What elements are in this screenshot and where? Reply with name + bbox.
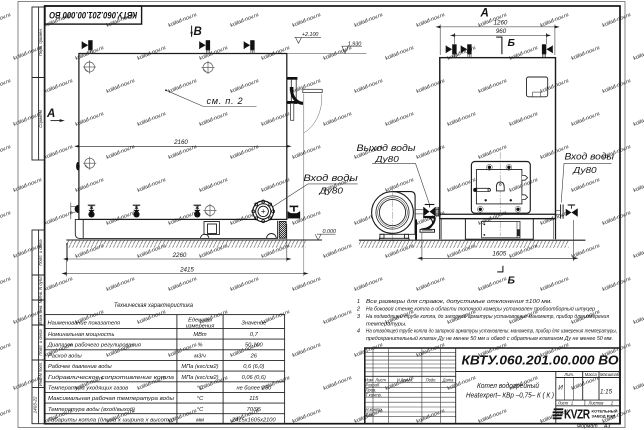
svg-text:Листов: Листов xyxy=(588,401,605,406)
svg-text:kotlad-nov.ru: kotlad-nov.ru xyxy=(385,111,415,128)
svg-text:kotlad-nov.ru: kotlad-nov.ru xyxy=(292,12,322,29)
svg-text:Дата: Дата xyxy=(442,377,455,382)
svg-text:kotlad-nov.ru: kotlad-nov.ru xyxy=(416,12,446,29)
svg-text:Изм: Изм xyxy=(365,377,373,382)
svg-text:kotlad-nov.ru: kotlad-nov.ru xyxy=(540,276,570,293)
svg-text:Диапазон рабочего регулировани: Диапазон рабочего регулирования xyxy=(47,343,141,349)
svg-text:kotlad-nov.ru: kotlad-nov.ru xyxy=(633,243,644,260)
svg-text:kotlad-nov.ru: kotlad-nov.ru xyxy=(168,78,198,95)
svg-text:Взам. инв. N: Взам. инв. N xyxy=(38,299,43,324)
svg-text:Справ. N: Справ. N xyxy=(38,109,43,127)
svg-text:kotlad-nov.ru: kotlad-nov.ru xyxy=(230,78,260,95)
svg-text:Б: Б xyxy=(508,275,516,287)
svg-text:Вход воды: Вход воды xyxy=(565,152,615,162)
svg-text:kotlad-nov.ru: kotlad-nov.ru xyxy=(323,111,353,128)
svg-text:kotlad-nov.ru: kotlad-nov.ru xyxy=(137,309,167,326)
svg-text:kotlad-nov.ru: kotlad-nov.ru xyxy=(602,210,632,227)
svg-text:kotlad-nov.ru: kotlad-nov.ru xyxy=(602,78,632,95)
svg-text:kotlad-nov.ru: kotlad-nov.ru xyxy=(292,144,322,161)
svg-text:kotlad-nov.ru: kotlad-nov.ru xyxy=(478,408,508,425)
svg-text:kotlad-nov.ru: kotlad-nov.ru xyxy=(230,276,260,293)
svg-text:kotlad-nov.ru: kotlad-nov.ru xyxy=(292,342,322,359)
svg-text:kotlad-nov.ru: kotlad-nov.ru xyxy=(602,276,632,293)
svg-text:kotlad-nov.ru: kotlad-nov.ru xyxy=(571,243,601,260)
svg-text:Т.контр.: Т.контр. xyxy=(366,393,383,398)
svg-text:kotlad-nov.ru: kotlad-nov.ru xyxy=(447,177,477,194)
svg-text:kotlad-nov.ru: kotlad-nov.ru xyxy=(292,210,322,227)
svg-text:kotlad-nov.ru: kotlad-nov.ru xyxy=(354,78,384,95)
svg-text:0,7: 0,7 xyxy=(250,332,259,338)
svg-text:°С: °С xyxy=(197,385,204,391)
svg-text:kotlad-nov.ru: kotlad-nov.ru xyxy=(0,78,12,95)
svg-text:kotlad-nov.ru: kotlad-nov.ru xyxy=(0,342,12,359)
svg-text:2160: 2160 xyxy=(173,139,188,146)
svg-text:kotlad-nov.ru: kotlad-nov.ru xyxy=(571,111,601,128)
svg-text:1605: 1605 xyxy=(492,251,506,258)
svg-text:kotlad-nov.ru: kotlad-nov.ru xyxy=(44,144,74,161)
svg-text:kotlad-nov.ru: kotlad-nov.ru xyxy=(633,375,644,392)
svg-text:KVZR: KVZR xyxy=(564,407,590,422)
svg-text:70/95: 70/95 xyxy=(247,407,262,413)
svg-text:kotlad-nov.ru: kotlad-nov.ru xyxy=(447,111,477,128)
svg-text:На боковой стенке котла в обла: На боковой стенке котла в области топочн… xyxy=(366,306,595,313)
svg-text:Вход воды: Вход воды xyxy=(303,173,358,183)
svg-text:kotlad-nov.ru: kotlad-nov.ru xyxy=(44,276,74,293)
svg-text:Рабочее давление воды: Рабочее давление воды xyxy=(48,364,113,370)
svg-text:Heatexpert– КВр –0,75– К ( К ): Heatexpert– КВр –0,75– К ( К ) xyxy=(466,390,554,399)
svg-text:Лит.: Лит. xyxy=(563,372,574,377)
svg-text:Подп. и дата: Подп. и дата xyxy=(38,239,43,266)
svg-text:Инв. N дубл.: Инв. N дубл. xyxy=(38,275,43,299)
svg-text:Перв. примен.: Перв. примен. xyxy=(38,28,43,56)
svg-text:°С: °С xyxy=(197,396,204,402)
svg-text:kotlad-nov.ru: kotlad-nov.ru xyxy=(199,177,229,194)
svg-text:На отводящей трубе котла до за: На отводящей трубе котла до запорной арм… xyxy=(366,328,617,335)
svg-text:kotlad-nov.ru: kotlad-nov.ru xyxy=(199,111,229,128)
svg-text:kotlad-nov.ru: kotlad-nov.ru xyxy=(137,177,167,194)
svg-text:kotlad-nov.ru: kotlad-nov.ru xyxy=(385,45,415,62)
svg-text:kotlad-nov.ru: kotlad-nov.ru xyxy=(13,177,43,194)
svg-text:kotlad-nov.ru: kotlad-nov.ru xyxy=(354,276,384,293)
svg-text:kotlad-nov.ru: kotlad-nov.ru xyxy=(0,276,12,293)
svg-text:А3: А3 xyxy=(603,424,610,430)
svg-text:1: 1 xyxy=(571,401,573,406)
svg-text:Ду80: Ду80 xyxy=(572,165,597,175)
svg-text:МПа (кгс/см2): МПа (кгс/см2) xyxy=(181,375,218,381)
svg-text:Температура воды (вход/выход): Температура воды (вход/выход) xyxy=(48,407,135,413)
svg-text:Выход воды: Выход воды xyxy=(357,143,416,153)
svg-text:kotlad-nov.ru: kotlad-nov.ru xyxy=(292,276,322,293)
svg-text:kotlad-nov.ru: kotlad-nov.ru xyxy=(354,12,384,29)
svg-text:kotlad-nov.ru: kotlad-nov.ru xyxy=(323,375,353,392)
svg-text:Температура уходящих газов: Температура уходящих газов xyxy=(48,385,128,391)
svg-text:2415х1605х2100: 2415х1605х2100 xyxy=(231,417,276,423)
svg-text:Инв. N подл.: Инв. N подл. xyxy=(38,362,43,386)
svg-text:kotlad-nov.ru: kotlad-nov.ru xyxy=(0,408,12,425)
svg-text:2: 2 xyxy=(610,401,614,406)
svg-text:kotlad-nov.ru: kotlad-nov.ru xyxy=(478,78,508,95)
svg-text:2: 2 xyxy=(356,307,361,313)
svg-text:kotlad-nov.ru: kotlad-nov.ru xyxy=(633,45,644,62)
svg-text:°С: °С xyxy=(197,407,204,413)
svg-text:Техническая характеристика: Техническая характеристика xyxy=(114,303,194,309)
svg-text:Номинальная мощность: Номинальная мощность xyxy=(48,332,114,338)
svg-text:Масса: Масса xyxy=(585,372,598,377)
svg-text:1260: 1260 xyxy=(494,19,508,26)
svg-text:115: 115 xyxy=(249,396,259,402)
svg-text:kotlad-nov.ru: kotlad-nov.ru xyxy=(0,210,12,227)
svg-text:kotlad-nov.ru: kotlad-nov.ru xyxy=(633,309,644,326)
svg-text:kotlad-nov.ru: kotlad-nov.ru xyxy=(0,12,12,29)
svg-text:предохранительный клапан Ду не: предохранительный клапан Ду не менее 50 … xyxy=(366,335,613,342)
svg-text:МПа (кгс/см2): МПа (кгс/см2) xyxy=(181,364,218,370)
svg-text:В: В xyxy=(194,26,202,38)
svg-text:kotlad-nov.ru: kotlad-nov.ru xyxy=(478,144,508,161)
svg-text:kotlad-nov.ru: kotlad-nov.ru xyxy=(571,45,601,62)
svg-text:kotlad-nov.ru: kotlad-nov.ru xyxy=(106,210,136,227)
svg-text:kotlad-nov.ru: kotlad-nov.ru xyxy=(44,78,74,95)
svg-text:kotlad-nov.ru: kotlad-nov.ru xyxy=(44,210,74,227)
svg-text:26: 26 xyxy=(250,353,258,359)
svg-text:измерения: измерения xyxy=(186,323,214,329)
svg-text:50-100: 50-100 xyxy=(245,343,264,349)
svg-text:kotlad-nov.ru: kotlad-nov.ru xyxy=(106,276,136,293)
svg-text:ЗАВОД РЭП: ЗАВОД РЭП xyxy=(592,414,616,419)
svg-text:А: А xyxy=(46,108,55,120)
svg-text:kotlad-nov.ru: kotlad-nov.ru xyxy=(168,210,198,227)
svg-text:На подводящей трубе котла, д: На подводящей трубе котла, до запорной а… xyxy=(366,313,609,320)
svg-text:Б: Б xyxy=(508,37,516,49)
svg-text:Зав.: Зав. xyxy=(366,412,374,417)
svg-text:kotlad-nov.ru: kotlad-nov.ru xyxy=(137,111,167,128)
svg-text:kotlad-nov.ru: kotlad-nov.ru xyxy=(323,309,353,326)
svg-text:Максимальная рабочая температу: Максимальная рабочая температура воды xyxy=(48,396,175,402)
svg-text:kotlad-nov.ru: kotlad-nov.ru xyxy=(323,243,353,260)
svg-text:kotlad-nov.ru: kotlad-nov.ru xyxy=(106,78,136,95)
svg-text:Котел водогрейный: Котел водогрейный xyxy=(477,381,539,390)
svg-text:kotlad-nov.ru: kotlad-nov.ru xyxy=(602,12,632,29)
svg-text:Ду80: Ду80 xyxy=(319,186,344,196)
svg-text:2415: 2415 xyxy=(179,266,194,273)
svg-text:Лист: Лист xyxy=(374,377,386,382)
svg-text:не более 250: не более 250 xyxy=(236,385,272,391)
svg-text:kotlad-nov.ru: kotlad-nov.ru xyxy=(540,78,570,95)
svg-text:температуры.: температуры. xyxy=(366,321,407,327)
svg-text:kotlad-nov.ru: kotlad-nov.ru xyxy=(292,408,322,425)
svg-text:Значение: Значение xyxy=(241,321,266,327)
svg-text:Подп.: Подп. xyxy=(426,377,437,382)
svg-text:И: И xyxy=(558,385,563,392)
svg-text:1403-22: 1403-22 xyxy=(33,396,38,413)
svg-text:960: 960 xyxy=(496,28,507,35)
svg-text:kotlad-nov.ru: kotlad-nov.ru xyxy=(230,12,260,29)
svg-text:4: 4 xyxy=(357,329,360,335)
svg-text:А: А xyxy=(480,8,489,20)
svg-text:kotlad-nov.ru: kotlad-nov.ru xyxy=(571,177,601,194)
svg-text:kotlad-nov.ru: kotlad-nov.ru xyxy=(478,276,508,293)
svg-text:КВТУ.060.201.00.000 ВО: КВТУ.060.201.00.000 ВО xyxy=(462,353,619,368)
svg-text:м3/ч: м3/ч xyxy=(194,353,206,359)
svg-text:%: % xyxy=(197,343,202,349)
svg-text:kotlad-nov.ru: kotlad-nov.ru xyxy=(633,177,644,194)
svg-text:kotlad-nov.ru: kotlad-nov.ru xyxy=(168,276,198,293)
svg-text:Масштаб: Масштаб xyxy=(600,372,620,377)
svg-text:Лист: Лист xyxy=(557,401,569,406)
svg-text:N докум.: N докум. xyxy=(397,377,414,382)
svg-text:kotlad-nov.ru: kotlad-nov.ru xyxy=(416,276,446,293)
svg-text:Наименование показателя: Наименование показателя xyxy=(48,321,121,327)
svg-text:КВТУ.060.201.00.000 ВО: КВТУ.060.201.00.000 ВО xyxy=(49,10,137,20)
svg-text:Гидравлическое сопротивление к: Гидравлическое сопротивление котла xyxy=(48,375,174,381)
svg-text:kotlad-nov.ru: kotlad-nov.ru xyxy=(0,144,12,161)
svg-text:kotlad-nov.ru: kotlad-nov.ru xyxy=(633,111,644,128)
svg-text:0,6 (6,0): 0,6 (6,0) xyxy=(243,364,264,370)
svg-text:0,06 (0,6): 0,06 (0,6) xyxy=(242,375,266,381)
svg-text:Подп. и дата: Подп. и дата xyxy=(38,329,43,356)
svg-text:Все размеры для справок, допус: Все размеры для справок, допустимые откл… xyxy=(366,299,552,305)
svg-text:kotlad-nov.ru: kotlad-nov.ru xyxy=(416,78,446,95)
svg-text:см. п. 2: см. п. 2 xyxy=(207,96,244,106)
svg-text:3: 3 xyxy=(357,314,361,320)
svg-text:Габариты котла (длина х ширина: Габариты котла (длина х ширина х высота) xyxy=(48,417,174,423)
svg-text:Расход воды: Расход воды xyxy=(48,353,82,359)
svg-text:МВт: МВт xyxy=(193,332,207,338)
svg-text:kotlad-nov.ru: kotlad-nov.ru xyxy=(509,111,539,128)
svg-text:1: 1 xyxy=(357,299,360,305)
svg-text:Формат: Формат xyxy=(577,424,598,430)
svg-text:kotlad-nov.ru: kotlad-nov.ru xyxy=(416,144,446,161)
svg-text:2260: 2260 xyxy=(172,252,187,259)
svg-text:1:15: 1:15 xyxy=(600,388,613,395)
svg-text:мм: мм xyxy=(196,417,204,423)
svg-text:Ду80: Ду80 xyxy=(374,154,399,164)
